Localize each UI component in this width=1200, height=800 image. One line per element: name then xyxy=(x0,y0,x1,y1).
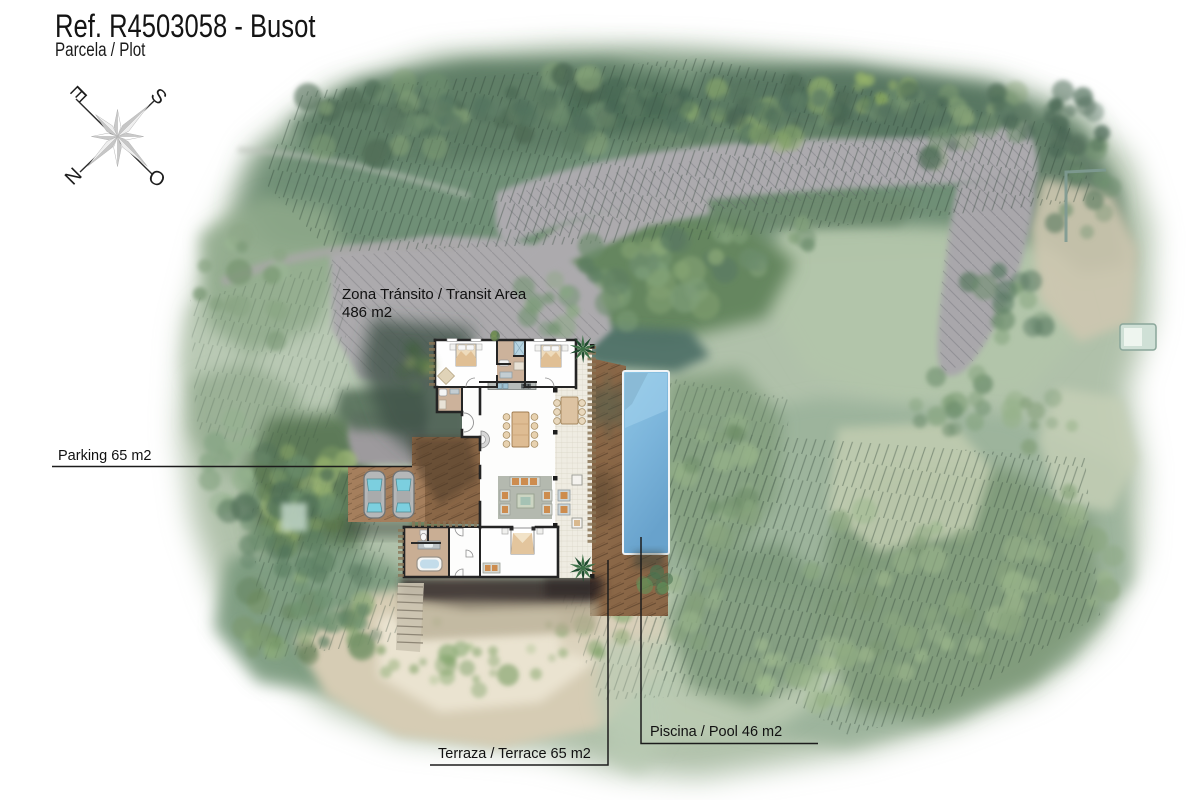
svg-text:Terraza / Terrace 65 m2: Terraza / Terrace 65 m2 xyxy=(438,746,591,762)
svg-text:Piscina / Pool 46 m2: Piscina / Pool 46 m2 xyxy=(650,724,782,740)
svg-text:E: E xyxy=(66,81,91,106)
svg-text:Parking 65 m2: Parking 65 m2 xyxy=(58,448,152,464)
svg-text:Zona Tránsito / Transit Area: Zona Tránsito / Transit Area xyxy=(342,286,527,303)
svg-text:486 m2: 486 m2 xyxy=(342,304,392,321)
svg-text:N: N xyxy=(61,164,87,190)
